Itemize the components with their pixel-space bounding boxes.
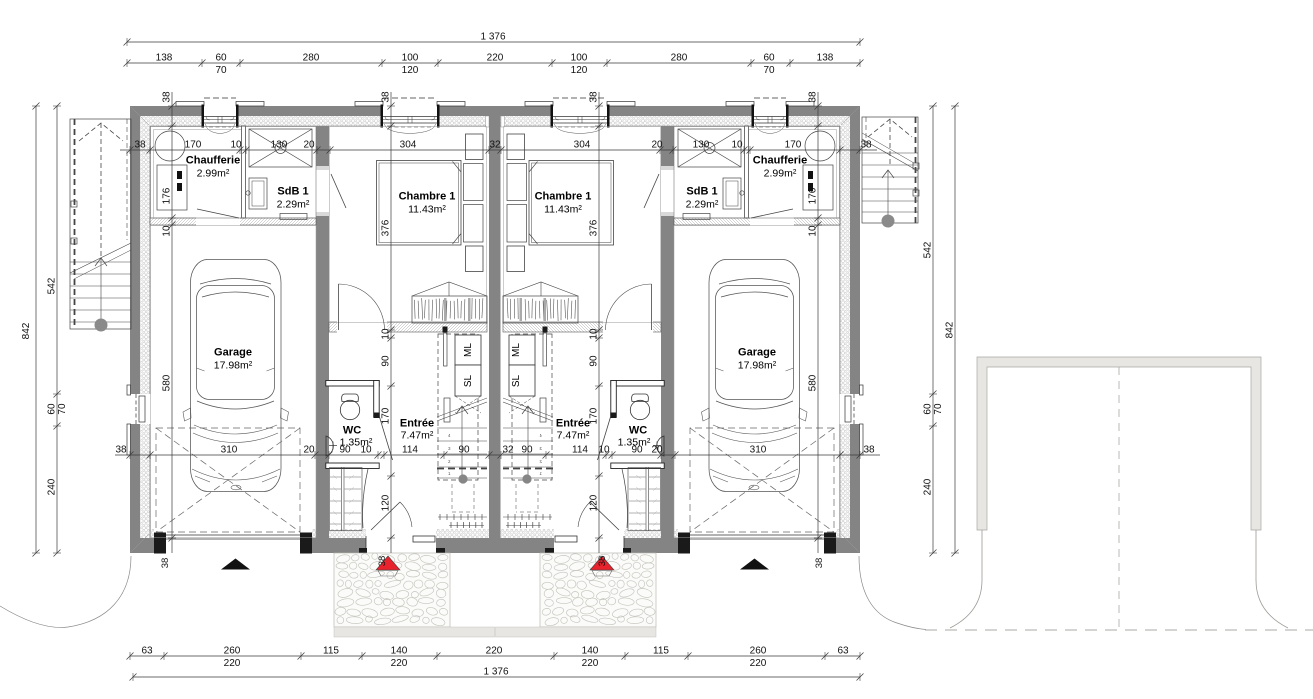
svg-text:115: 115 xyxy=(323,646,339,657)
svg-text:SL: SL xyxy=(511,374,522,387)
svg-text:11.43m²: 11.43m² xyxy=(544,204,582,216)
svg-text:20: 20 xyxy=(303,140,315,151)
svg-text:100: 100 xyxy=(571,53,588,64)
svg-text:120: 120 xyxy=(381,494,392,511)
svg-text:842: 842 xyxy=(945,321,956,338)
svg-text:63: 63 xyxy=(141,646,153,657)
svg-text:580: 580 xyxy=(162,374,173,391)
svg-text:38: 38 xyxy=(160,558,171,569)
svg-text:20: 20 xyxy=(651,445,663,456)
svg-text:10: 10 xyxy=(808,225,819,237)
svg-text:1.35m²: 1.35m² xyxy=(340,437,373,449)
svg-text:2.99m²: 2.99m² xyxy=(197,168,230,180)
svg-text:10: 10 xyxy=(589,328,600,340)
svg-text:20: 20 xyxy=(651,140,663,151)
svg-text:120: 120 xyxy=(571,65,588,76)
svg-text:138: 138 xyxy=(817,53,834,64)
svg-text:220: 220 xyxy=(391,658,408,669)
svg-text:842: 842 xyxy=(21,322,32,339)
svg-text:170: 170 xyxy=(185,140,202,151)
svg-text:10: 10 xyxy=(162,225,173,237)
svg-text:10: 10 xyxy=(381,328,392,340)
svg-text:38: 38 xyxy=(808,91,819,103)
svg-text:17.98m²: 17.98m² xyxy=(214,360,253,372)
svg-text:Garage: Garage xyxy=(738,347,776,359)
svg-text:280: 280 xyxy=(303,53,320,64)
svg-text:304: 304 xyxy=(400,140,417,151)
svg-text:114: 114 xyxy=(572,445,588,456)
svg-text:Chambre 1: Chambre 1 xyxy=(399,191,456,203)
svg-text:114: 114 xyxy=(402,445,418,456)
svg-text:10: 10 xyxy=(731,140,743,151)
svg-text:240: 240 xyxy=(47,478,58,495)
svg-text:580: 580 xyxy=(808,374,819,391)
svg-text:20: 20 xyxy=(303,445,315,456)
svg-text:220: 220 xyxy=(582,658,599,669)
svg-text:SdB 1: SdB 1 xyxy=(686,186,717,198)
svg-text:SdB 1: SdB 1 xyxy=(277,186,308,198)
svg-text:220: 220 xyxy=(750,658,767,669)
svg-text:32: 32 xyxy=(502,445,514,456)
svg-text:63: 63 xyxy=(837,646,849,657)
svg-text:60: 60 xyxy=(47,403,58,415)
svg-text:240: 240 xyxy=(923,478,934,495)
svg-text:38: 38 xyxy=(814,558,825,569)
svg-text:220: 220 xyxy=(487,53,504,64)
svg-text:170: 170 xyxy=(381,407,392,424)
svg-text:176: 176 xyxy=(162,187,173,204)
svg-text:100: 100 xyxy=(402,53,419,64)
svg-text:38: 38 xyxy=(381,91,392,103)
svg-text:220: 220 xyxy=(224,658,241,669)
svg-text:70: 70 xyxy=(57,403,68,415)
svg-text:38: 38 xyxy=(597,556,608,567)
svg-text:Chaufferie: Chaufferie xyxy=(186,155,240,167)
svg-text:38: 38 xyxy=(115,445,127,456)
svg-text:376: 376 xyxy=(589,219,600,236)
svg-text:7.47m²: 7.47m² xyxy=(401,430,434,442)
svg-text:Chaufferie: Chaufferie xyxy=(753,155,807,167)
svg-text:70: 70 xyxy=(933,403,944,415)
svg-text:220: 220 xyxy=(486,646,503,657)
svg-text:60: 60 xyxy=(763,53,775,64)
svg-text:130: 130 xyxy=(271,140,288,151)
svg-text:280: 280 xyxy=(671,53,688,64)
svg-text:170: 170 xyxy=(589,407,600,424)
svg-text:1 376: 1 376 xyxy=(480,32,505,43)
svg-text:7.47m²: 7.47m² xyxy=(557,430,590,442)
svg-text:SL: SL xyxy=(463,374,474,387)
svg-text:WC: WC xyxy=(343,425,361,437)
svg-text:260: 260 xyxy=(224,646,241,657)
svg-text:WC: WC xyxy=(629,425,647,437)
svg-text:120: 120 xyxy=(402,65,419,76)
svg-text:70: 70 xyxy=(763,65,775,76)
svg-text:10: 10 xyxy=(598,445,610,456)
svg-text:60: 60 xyxy=(923,403,934,415)
svg-text:11.43m²: 11.43m² xyxy=(408,204,446,216)
svg-text:140: 140 xyxy=(582,646,599,657)
svg-text:90: 90 xyxy=(381,355,392,367)
svg-text:542: 542 xyxy=(923,241,934,258)
svg-text:Garage: Garage xyxy=(214,347,252,359)
svg-text:Chambre 1: Chambre 1 xyxy=(535,191,592,203)
svg-text:90: 90 xyxy=(521,445,533,456)
svg-text:ML: ML xyxy=(463,343,474,357)
svg-text:32: 32 xyxy=(489,140,501,151)
svg-text:176: 176 xyxy=(808,187,819,204)
svg-text:38: 38 xyxy=(863,445,875,456)
svg-text:170: 170 xyxy=(785,140,802,151)
svg-text:1.35m²: 1.35m² xyxy=(618,437,651,449)
svg-text:1 376: 1 376 xyxy=(483,667,508,678)
svg-text:38: 38 xyxy=(589,91,600,103)
svg-text:376: 376 xyxy=(381,219,392,236)
svg-text:2.29m²: 2.29m² xyxy=(277,199,310,211)
svg-text:ML: ML xyxy=(511,343,522,357)
svg-text:138: 138 xyxy=(156,53,173,64)
svg-text:310: 310 xyxy=(221,445,238,456)
svg-text:2.29m²: 2.29m² xyxy=(686,199,719,211)
svg-text:130: 130 xyxy=(693,140,710,151)
svg-text:38: 38 xyxy=(377,556,388,567)
svg-text:70: 70 xyxy=(215,65,227,76)
svg-text:Entrée: Entrée xyxy=(400,418,434,430)
svg-text:140: 140 xyxy=(391,646,408,657)
svg-text:2.99m²: 2.99m² xyxy=(764,168,797,180)
svg-text:Entrée: Entrée xyxy=(556,418,590,430)
svg-text:115: 115 xyxy=(653,646,669,657)
svg-text:304: 304 xyxy=(574,140,591,151)
svg-text:17.98m²: 17.98m² xyxy=(738,360,777,372)
svg-text:120: 120 xyxy=(589,494,600,511)
svg-text:10: 10 xyxy=(230,140,242,151)
svg-text:38: 38 xyxy=(162,91,173,103)
svg-text:310: 310 xyxy=(750,445,767,456)
svg-text:60: 60 xyxy=(215,53,227,64)
svg-text:90: 90 xyxy=(458,445,470,456)
svg-text:38: 38 xyxy=(134,140,146,151)
svg-text:542: 542 xyxy=(47,277,58,294)
svg-text:260: 260 xyxy=(750,646,767,657)
svg-text:90: 90 xyxy=(589,355,600,367)
